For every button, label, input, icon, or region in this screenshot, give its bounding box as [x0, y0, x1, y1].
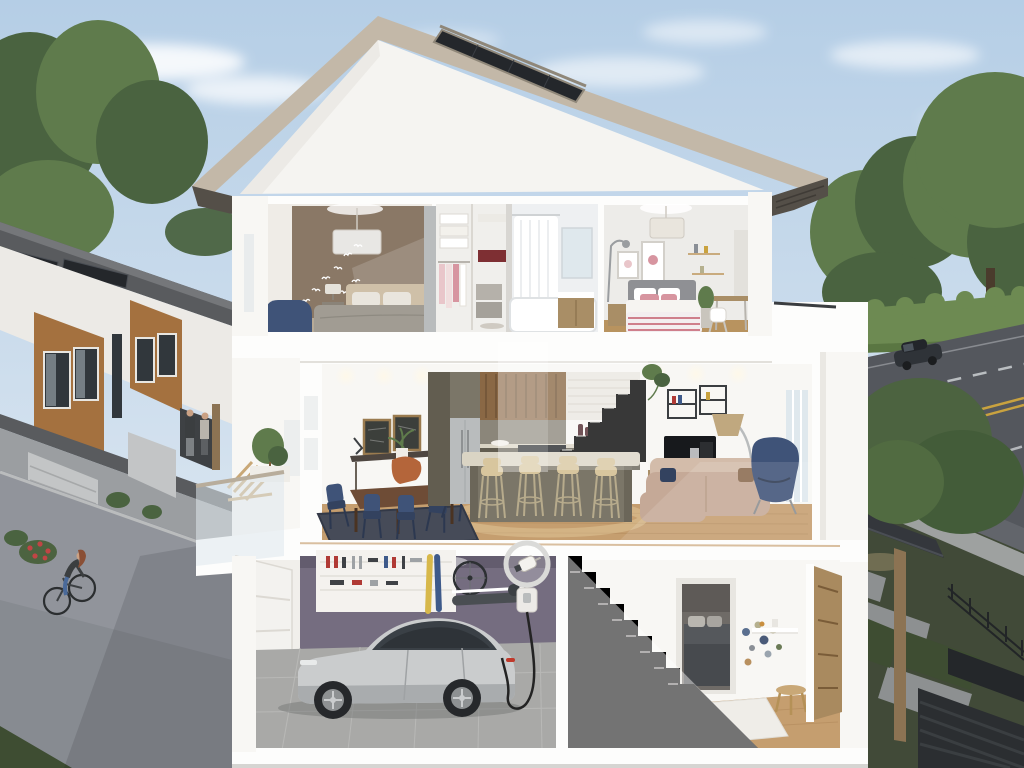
front-walk: [232, 764, 868, 768]
topfloor-right-wall: [748, 192, 772, 336]
upper-cabinet: [450, 372, 480, 418]
base-slab: [232, 748, 868, 766]
ground-floor: [232, 543, 868, 768]
main-floor: [196, 342, 868, 576]
upper-floor: [232, 192, 772, 364]
groundfloor-left-wall: [232, 556, 256, 752]
architectural-rendering: [0, 0, 1024, 768]
bed-with-pink: [626, 280, 702, 334]
headlight: [300, 660, 317, 665]
slit-window: [112, 334, 122, 418]
left-slit-window: [244, 234, 254, 312]
bathroom: [510, 200, 598, 332]
walk-in-closet: [436, 200, 512, 332]
nightstand: [608, 304, 626, 326]
hallway: [568, 556, 842, 750]
pillow: [707, 616, 722, 627]
ceiling-strip: [268, 196, 748, 204]
ceiling-glow: [327, 203, 383, 215]
folded-linens: [440, 214, 468, 248]
pillow: [352, 292, 380, 307]
porch-post: [894, 548, 906, 742]
rear-wheel: [443, 679, 481, 717]
closet-slider: [424, 206, 436, 332]
front-wheel: [314, 681, 352, 719]
garage: [236, 543, 562, 750]
tall-cabinet: [428, 372, 450, 506]
pillow: [688, 616, 705, 627]
wood-vanity: [558, 292, 594, 328]
glass-railing: [196, 472, 284, 566]
cutplane-ghost: [498, 342, 548, 472]
taillight: [506, 658, 515, 662]
entry-post: [212, 404, 220, 470]
rendering-stage: [0, 0, 1024, 768]
mirror: [562, 228, 592, 278]
second-bedroom: [604, 202, 748, 335]
door-frame: [734, 230, 748, 296]
throw-pillow: [660, 468, 676, 482]
front-door: [806, 564, 842, 722]
pillow: [383, 292, 411, 307]
